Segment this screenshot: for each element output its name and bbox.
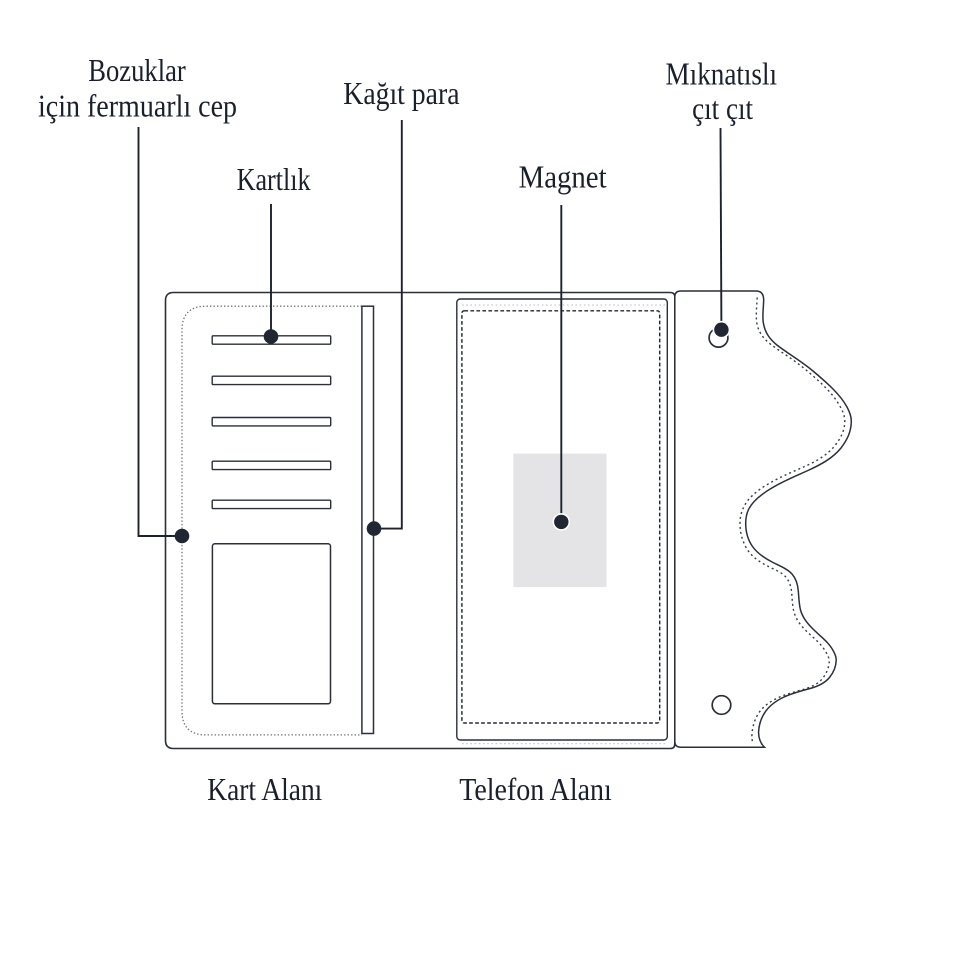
svg-text:Magnet: Magnet (519, 159, 607, 195)
svg-text:Bozuklar: Bozuklar (88, 52, 186, 88)
svg-text:Telefon Alanı: Telefon Alanı (459, 771, 612, 807)
svg-text:için fermuarlı cep: için fermuarlı cep (38, 87, 237, 123)
svg-text:Kartlık: Kartlık (237, 161, 311, 197)
svg-text:çıt çıt: çıt çıt (692, 90, 753, 126)
svg-text:Kart Alanı: Kart Alanı (207, 771, 322, 807)
svg-text:Mıknatıslı: Mıknatıslı (666, 56, 778, 92)
svg-text:Kağıt para: Kağıt para (343, 75, 459, 111)
